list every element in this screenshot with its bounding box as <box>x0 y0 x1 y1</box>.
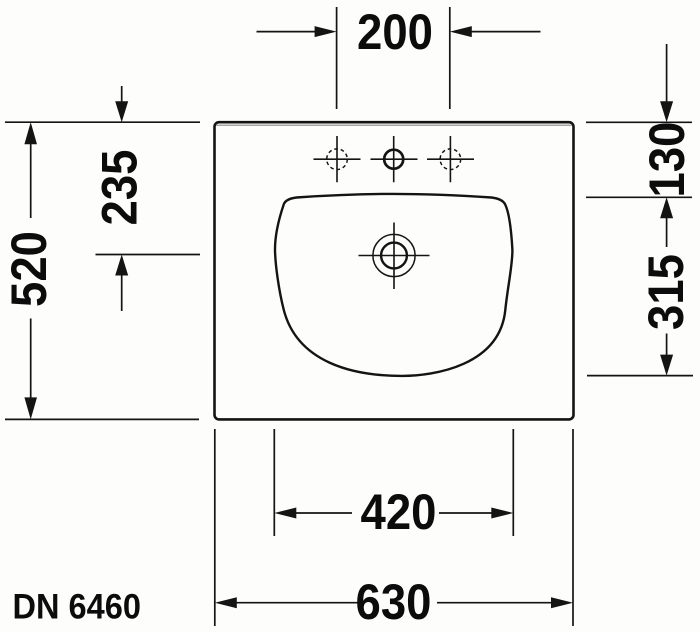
svg-text:130: 130 <box>640 122 695 198</box>
svg-text:520: 520 <box>2 231 57 307</box>
svg-text:DN 6460: DN 6460 <box>13 587 141 626</box>
svg-text:420: 420 <box>361 485 437 540</box>
svg-text:630: 630 <box>356 575 432 630</box>
svg-text:200: 200 <box>357 5 433 60</box>
svg-text:315: 315 <box>639 254 694 330</box>
svg-text:235: 235 <box>93 150 148 226</box>
